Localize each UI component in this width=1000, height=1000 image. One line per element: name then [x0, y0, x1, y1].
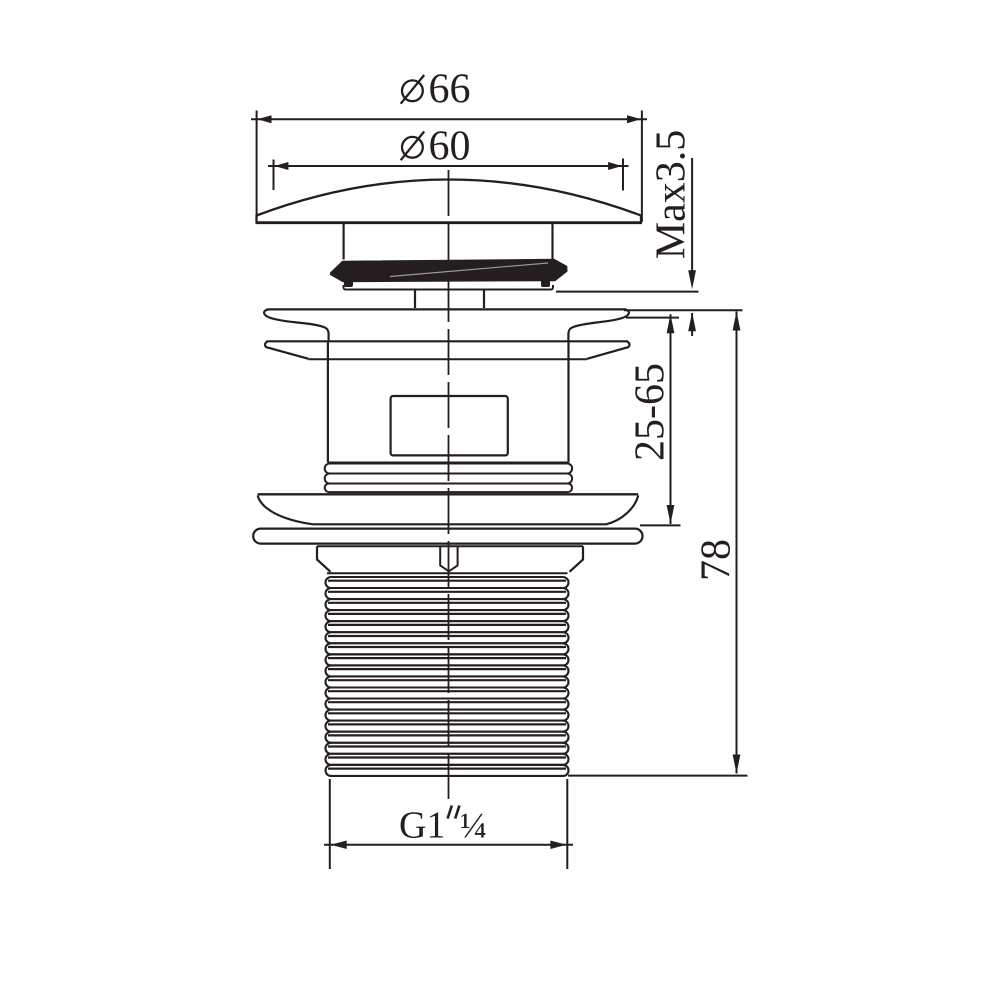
svg-text:G1: G1	[399, 805, 445, 847]
svg-text:25-65: 25-65	[628, 363, 674, 461]
svg-text:¼: ¼	[460, 806, 487, 846]
svg-text:78: 78	[694, 539, 740, 581]
svg-text:Max3.5: Max3.5	[649, 130, 695, 260]
svg-text:60: 60	[429, 124, 471, 170]
svg-text:66: 66	[429, 67, 471, 113]
